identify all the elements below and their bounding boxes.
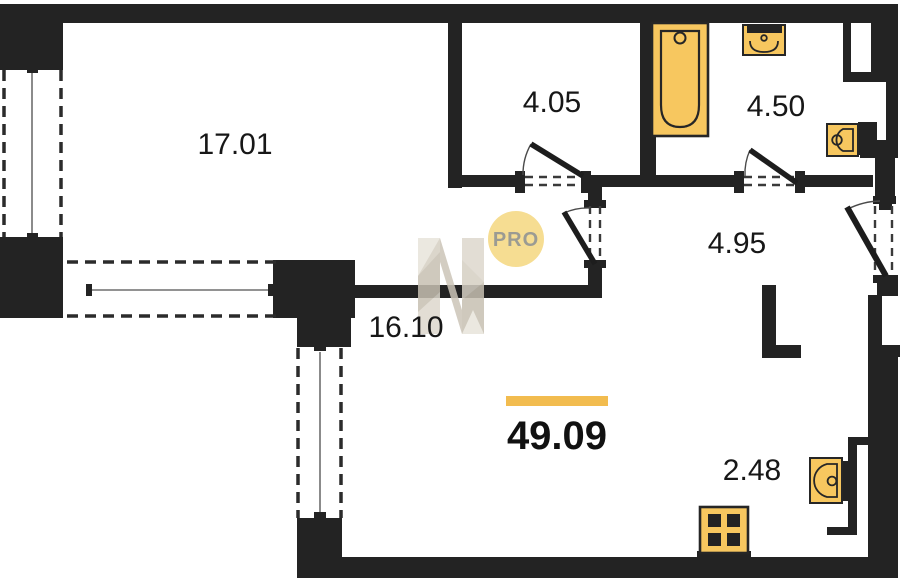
entrance-hinge-plate — [879, 203, 892, 210]
wall-right-top — [886, 4, 898, 158]
pro-logo: PRO — [488, 211, 544, 267]
tick — [314, 512, 326, 518]
tick — [27, 233, 38, 240]
shaft-wall-right — [871, 23, 886, 80]
tick — [314, 345, 326, 351]
wall-left-top-block — [0, 4, 63, 70]
door405-arc — [523, 144, 531, 175]
kitchen-sink-mount — [842, 461, 857, 501]
sink-mount — [747, 24, 782, 33]
floor-plan: PRO 17.01 4.05 4.50 4.95 16.10 2.48 49.0… — [0, 0, 900, 581]
shaft-wall-left — [843, 23, 851, 80]
wall-hall-left — [448, 175, 519, 187]
entrance-jamb-top — [873, 196, 896, 204]
wall-bottom — [297, 557, 898, 578]
label-bathroom: 4.50 — [747, 90, 805, 123]
burner — [708, 514, 721, 527]
pro-logo-text: PRO — [493, 229, 539, 251]
doors — [523, 144, 886, 276]
wall-hall-mid — [589, 175, 737, 187]
total-area-accent-bar — [506, 396, 608, 406]
burner — [727, 514, 740, 527]
wall-495-kitchen-h — [762, 345, 801, 358]
wall-top — [2, 4, 898, 23]
wall-corner-block-foot — [297, 316, 351, 347]
door495-arc — [564, 208, 590, 213]
label-hall-top: 4.05 — [523, 86, 581, 119]
toilet-tank — [858, 122, 877, 155]
wall-hall-right — [803, 175, 873, 187]
wall-right-above-door — [875, 158, 895, 199]
burner — [727, 533, 740, 546]
label-kitchen-zone: 2.48 — [723, 454, 781, 487]
wall-left-bottom-block — [0, 237, 63, 318]
wall-1701-405 — [448, 23, 462, 188]
label-living-room: 17.01 — [197, 128, 272, 161]
tick — [268, 284, 274, 296]
floor-plan-drawing: PRO 17.01 4.05 4.50 4.95 16.10 2.48 49.0… — [0, 0, 900, 581]
wall-right-bottom — [868, 357, 898, 578]
label-hallway: 4.95 — [708, 227, 766, 260]
entrance-leaf — [847, 207, 886, 276]
stove-body — [700, 507, 748, 553]
tick — [27, 66, 38, 73]
wall-hallway-495-top — [588, 175, 602, 204]
bathtub — [652, 23, 708, 136]
toilet — [827, 122, 877, 156]
label-main-room: 16.10 — [368, 311, 443, 344]
duct-wall-top — [848, 437, 872, 445]
door405-leaf — [531, 144, 583, 176]
door450-jamb-left — [734, 171, 744, 193]
wall-right-connector — [868, 345, 900, 357]
total-area-label: 49.09 — [507, 414, 607, 458]
stove — [697, 507, 751, 558]
kitchen-sink — [810, 458, 857, 503]
tick — [86, 284, 92, 296]
door450-arc — [745, 150, 750, 176]
bathroom-sink — [743, 24, 785, 55]
door495-jamb-top — [584, 200, 606, 208]
burner — [708, 533, 721, 546]
wall-right-below-door — [877, 283, 898, 296]
duct-wall-bottom — [827, 527, 857, 535]
wall-right-mid — [868, 295, 882, 352]
wall-corner-block — [273, 260, 355, 318]
